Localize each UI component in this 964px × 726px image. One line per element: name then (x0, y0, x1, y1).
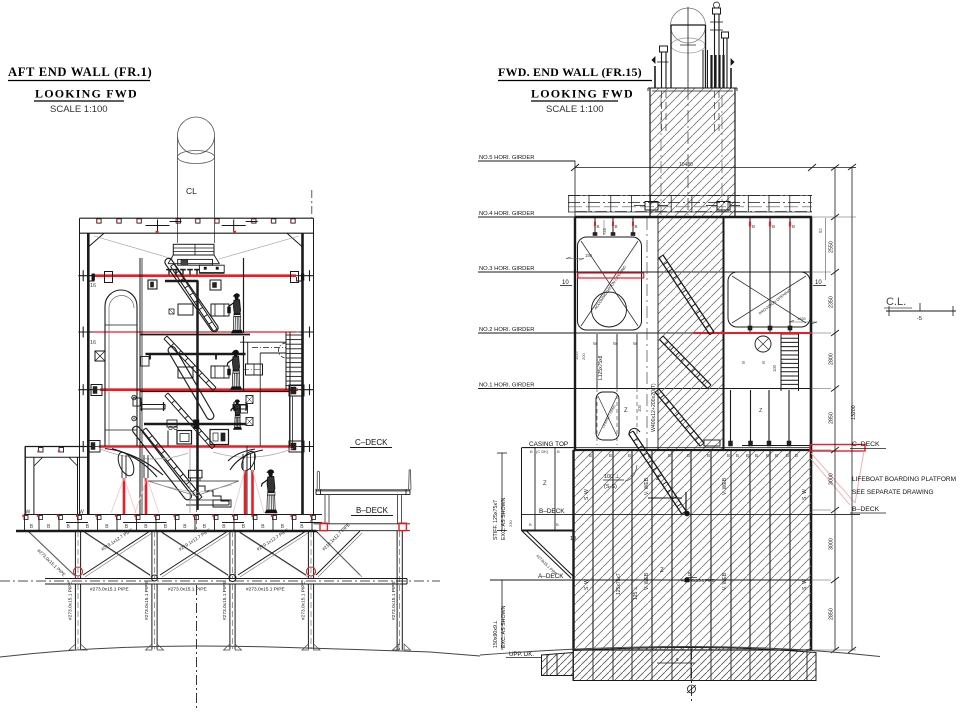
svg-text:125x75x7: 125x75x7 (616, 573, 622, 595)
svg-text:B: B (530, 449, 533, 454)
svg-text:B: B (628, 453, 631, 458)
svg-text:B: B (557, 449, 560, 454)
svg-text:B: B (635, 224, 638, 229)
svg-text:EXC. AS SHOWN: EXC. AS SHOWN (501, 497, 507, 540)
svg-text:16: 16 (90, 340, 96, 346)
svg-text:EXC. AS SHOWN: EXC. AS SHOWN (501, 605, 507, 648)
svg-text:A–DECK: A–DECK (538, 573, 564, 580)
svg-text:2550: 2550 (829, 241, 835, 253)
svg-text:C–DECK: C–DECK (355, 438, 388, 447)
svg-text:B: B (772, 224, 775, 229)
svg-text:#273.0x15.1 PIPE: #273.0x15.1 PIPE (301, 581, 307, 620)
svg-text:150: 150 (585, 253, 593, 258)
svg-text:B: B (615, 224, 618, 229)
svg-text:S: S (742, 360, 745, 365)
svg-text:#273.0x15.1 PIPE: #273.0x15.1 PIPE (222, 581, 228, 620)
svg-text:150x90x9⊥: 150x90x9⊥ (493, 620, 499, 648)
svg-text:2850: 2850 (829, 412, 835, 424)
svg-text:B–DECK: B–DECK (356, 506, 389, 515)
svg-text:L125x75x8: L125x75x8 (598, 355, 604, 380)
svg-text:(C DK): (C DK) (536, 449, 549, 454)
svg-text:52: 52 (818, 228, 823, 233)
svg-text:W: W (633, 341, 637, 346)
svg-text:S. W: S. W (802, 489, 808, 500)
svg-text:B: B (786, 453, 789, 458)
svg-text:B: B (795, 453, 798, 458)
svg-text:S. W: S. W (584, 489, 590, 500)
svg-text:NO.3 HORI. GIRDER: NO.3 HORI. GIRDER (479, 266, 534, 272)
svg-text:10430: 10430 (679, 162, 693, 168)
svg-text:-5: -5 (917, 316, 922, 322)
svg-text:S. W: S. W (584, 579, 590, 590)
svg-text:Z: Z (624, 408, 628, 414)
svg-text:NO.4 HORI. GIRDER: NO.4 HORI. GIRDER (479, 211, 534, 217)
svg-text:B: B (755, 453, 758, 458)
svg-text:B: B (766, 453, 769, 458)
svg-text:B: B (736, 453, 739, 458)
svg-text:3000: 3000 (829, 538, 835, 550)
svg-text:(S-S): (S-S) (604, 484, 617, 490)
svg-text:Z: Z (543, 481, 547, 487)
svg-text:725: 725 (602, 227, 607, 235)
svg-text:V. WEB: V. WEB (644, 572, 650, 590)
svg-text:S: S (780, 360, 783, 365)
svg-text:B–DECK: B–DECK (852, 506, 880, 513)
svg-text:CASING TOP: CASING TOP (529, 441, 568, 448)
svg-text:SEE SEPARATE DRAWING: SEE SEPARATE DRAWING (852, 489, 934, 496)
svg-text:V. WEB: V. WEB (722, 477, 728, 495)
svg-text:#273.0x15.1 PIPE: #273.0x15.1 PIPE (90, 587, 129, 593)
svg-text:100: 100 (637, 404, 642, 412)
svg-text:#273.0x15.1 PIPE: #273.0x15.1 PIPE (68, 581, 74, 620)
svg-text:B: B (707, 453, 710, 458)
svg-text:200: 200 (581, 353, 586, 360)
svg-text:Z: Z (660, 568, 664, 574)
svg-text:V. WEB: V. WEB (644, 477, 650, 495)
svg-text:V. WEB: V. WEB (722, 572, 728, 590)
svg-text:AFT END WALL (FR.1): AFT END WALL (FR.1) (8, 65, 152, 79)
svg-text:NO.1 HORI. GIRDER: NO.1 HORI. GIRDER (479, 383, 534, 389)
svg-text:230: 230 (508, 520, 513, 527)
svg-text:CL: CL (186, 186, 197, 196)
svg-text:100 ⊥: 100 ⊥ (604, 473, 620, 480)
svg-text:NO.5 HORI. GIRDER: NO.5 HORI. GIRDER (479, 155, 534, 161)
svg-text:B: B (792, 224, 795, 229)
svg-text:B: B (556, 522, 559, 527)
svg-text:B: B (529, 522, 532, 527)
svg-text:W400x12+200x20(T): W400x12+200x20(T) (651, 383, 657, 432)
svg-text:S: S (762, 360, 765, 365)
svg-text:1125: 1125 (574, 351, 579, 360)
svg-text:C–DECK: C–DECK (852, 441, 880, 448)
svg-text:16: 16 (90, 283, 96, 289)
svg-text:#273.0x15.1 PIPE: #273.0x15.1 PIPE (168, 587, 207, 593)
svg-text:S. W: S. W (802, 579, 808, 590)
svg-text:B: B (668, 453, 671, 458)
svg-text:2800: 2800 (829, 353, 835, 365)
svg-text:#273.0x15.1 PIPE: #273.0x15.1 PIPE (391, 581, 397, 620)
svg-text:#273.0x15.1 PIPE: #273.0x15.1 PIPE (246, 587, 285, 593)
svg-text:2850: 2850 (829, 608, 835, 620)
svg-text:W: W (593, 341, 597, 346)
svg-text:B: B (752, 224, 755, 229)
svg-text:B: B (746, 453, 749, 458)
svg-text:125 ⊥: 125 ⊥ (633, 586, 639, 600)
svg-text:W: W (613, 341, 617, 346)
svg-text:FWD. END WALL (FR.15): FWD. END WALL (FR.15) (498, 65, 642, 79)
svg-text:#273.0x15.1 PIPE: #273.0x15.1 PIPE (144, 581, 150, 620)
svg-text:B–DECK: B–DECK (539, 508, 565, 515)
svg-text:B: B (589, 453, 592, 458)
svg-text:13200: 13200 (851, 405, 857, 420)
svg-text:3000: 3000 (829, 473, 835, 485)
svg-text:NO.2 HORI. GIRDER: NO.2 HORI. GIRDER (479, 327, 534, 333)
svg-text:B: B (597, 224, 600, 229)
svg-text:B: B (687, 453, 690, 458)
svg-text:SCALE 1:100: SCALE 1:100 (546, 104, 604, 115)
svg-text:100: 100 (772, 364, 777, 372)
svg-text:STIFF. 125x75x7: STIFF. 125x75x7 (493, 500, 499, 540)
svg-text:B: B (609, 453, 612, 458)
svg-text:B: B (727, 453, 730, 458)
svg-text:SCALE 1:100: SCALE 1:100 (50, 104, 108, 115)
svg-text:LOOKING FWD: LOOKING FWD (531, 87, 634, 101)
svg-text:2350: 2350 (829, 296, 835, 308)
svg-text:1650: 1650 (797, 316, 807, 321)
svg-text:LOOKING FWD: LOOKING FWD (35, 87, 138, 101)
svg-text:B: B (775, 453, 778, 458)
svg-text:LIFEBOAT BOARDING PLATFORM: LIFEBOAT BOARDING PLATFORM (852, 476, 956, 483)
